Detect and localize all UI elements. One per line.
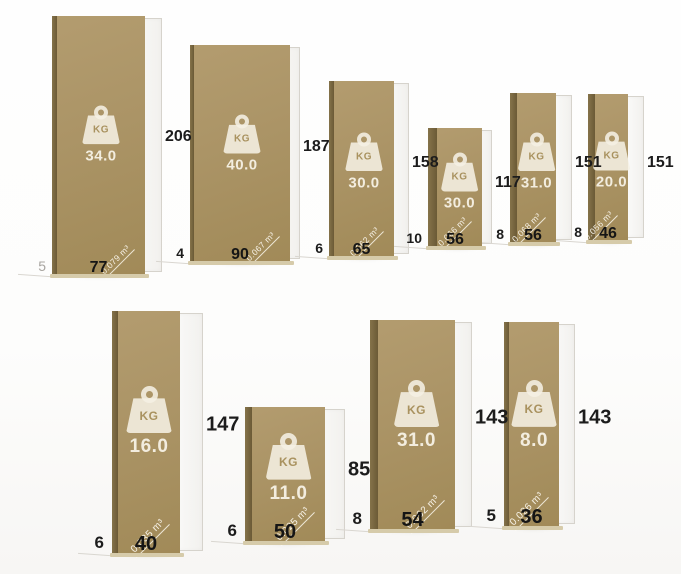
weight-unit-label: KG xyxy=(140,409,159,423)
board-edge xyxy=(112,311,118,553)
board-face: KG 31.0 0.062 m³ 54 xyxy=(370,320,455,529)
weight-knob-icon xyxy=(453,153,467,167)
weight-body-icon: KG xyxy=(266,445,312,480)
weight-knob-icon xyxy=(357,132,371,146)
thickness-label: 5 xyxy=(474,506,496,526)
board-edge xyxy=(329,81,334,256)
weight-unit-label: KG xyxy=(452,172,468,183)
weight-value: 31.0 xyxy=(397,430,436,452)
weight-icon: KG 34.0 xyxy=(82,105,120,164)
thickness-label: 8 xyxy=(482,226,504,242)
board-foot xyxy=(243,541,329,545)
weight-value: 11.0 xyxy=(270,483,308,505)
thickness-label: 6 xyxy=(82,533,104,553)
height-label: 187 xyxy=(303,138,330,156)
weight-value: 20.0 xyxy=(596,174,627,191)
board-edge xyxy=(510,93,517,242)
weight-icon: KG 16.0 xyxy=(126,386,172,458)
weight-knob-icon xyxy=(605,132,619,146)
thickness-label: 6 xyxy=(301,240,323,256)
weight-body-icon: KG xyxy=(345,142,383,171)
weight-value: 16.0 xyxy=(130,436,169,458)
board-8: KG 11.0 0.025 m³ 50 85 6 xyxy=(245,407,325,541)
weight-icon: KG 11.0 xyxy=(266,433,312,505)
weight-value: 8.0 xyxy=(520,430,548,452)
weight-knob-icon xyxy=(94,105,108,119)
board-foot xyxy=(327,256,398,260)
weight-icon: KG 40.0 xyxy=(223,115,261,174)
height-label: 151 xyxy=(647,154,674,172)
weight-unit-label: KG xyxy=(407,403,426,417)
weight-icon: KG 31.0 xyxy=(394,380,440,452)
height-label: 117 xyxy=(495,174,521,192)
board-foot xyxy=(188,261,294,265)
weight-value: 30.0 xyxy=(348,174,379,191)
board-foot xyxy=(508,242,560,246)
board-foot xyxy=(110,553,184,557)
weight-body-icon: KG xyxy=(518,142,556,171)
weight-knob-icon xyxy=(141,386,158,403)
board-foot xyxy=(502,526,563,530)
board-face: KG 31.0 0.068 m³ 56 xyxy=(510,93,556,242)
thickness-label: 8 xyxy=(340,509,362,529)
weight-value: 31.0 xyxy=(521,174,552,191)
board-9: KG 31.0 0.062 m³ 54 143 8 xyxy=(370,320,455,529)
thickness-label: 5 xyxy=(24,258,46,274)
board-3: KG 30.0 0.062 m³ 65 158 6 xyxy=(329,81,394,256)
weight-body-icon: KG xyxy=(82,115,120,144)
board-edge xyxy=(52,16,57,274)
weight-unit-label: KG xyxy=(529,151,545,162)
weight-body-icon: KG xyxy=(126,398,172,433)
weight-knob-icon xyxy=(235,115,249,129)
thickness-label: 8 xyxy=(560,224,582,240)
weight-unit-label: KG xyxy=(279,455,298,469)
weight-knob-icon xyxy=(530,132,544,146)
board-5: KG 31.0 0.068 m³ 56 151 8 xyxy=(510,93,556,242)
thickness-label: 6 xyxy=(215,521,237,541)
board-10: KG 8.0 0.026 m³ 36 143 5 xyxy=(504,322,559,526)
weight-value: 34.0 xyxy=(85,147,116,164)
weight-icon: KG 30.0 xyxy=(441,153,479,212)
board-2: KG 40.0 0.067 m³ 90 187 4 xyxy=(190,45,290,261)
board-foot xyxy=(368,529,459,533)
height-label: 143 xyxy=(475,407,508,430)
board-face: KG 30.0 0.066 m³ 56 xyxy=(428,128,482,246)
weight-icon: KG 31.0 xyxy=(518,132,556,191)
board-foot xyxy=(50,274,149,278)
weight-unit-label: KG xyxy=(604,151,620,162)
weight-value: 30.0 xyxy=(444,195,475,212)
weight-unit-label: KG xyxy=(93,124,109,135)
weight-knob-icon xyxy=(280,433,297,450)
height-label: 143 xyxy=(578,406,611,429)
thickness-label: 10 xyxy=(400,230,422,246)
board-face: KG 30.0 0.062 m³ 65 xyxy=(329,81,394,256)
weight-body-icon: KG xyxy=(223,125,261,154)
board-edge xyxy=(370,320,378,529)
weight-body-icon: KG xyxy=(511,392,557,427)
board-face: KG 11.0 0.025 m³ 50 xyxy=(245,407,325,541)
board-face: KG 34.0 0.079 m³ 77 xyxy=(52,16,145,274)
weight-body-icon: KG xyxy=(441,163,479,192)
height-label: 147 xyxy=(206,413,239,436)
board-7: KG 16.0 0.035 m³ 40 147 6 xyxy=(112,311,180,553)
height-label: 206 xyxy=(165,128,192,146)
height-label: 158 xyxy=(412,154,439,172)
board-4: KG 30.0 0.066 m³ 56 117 10 xyxy=(428,128,482,246)
weight-unit-label: KG xyxy=(356,151,372,162)
board-edge xyxy=(428,128,437,246)
board-size-infographic: KG 34.0 0.079 m³ 77 206 5 KG 40.0 0.067 … xyxy=(0,0,681,574)
board-1: KG 34.0 0.079 m³ 77 206 5 xyxy=(52,16,145,274)
board-face: KG 40.0 0.067 m³ 90 xyxy=(190,45,290,261)
thickness-label: 4 xyxy=(162,245,184,261)
weight-knob-icon xyxy=(408,380,425,397)
weight-unit-label: KG xyxy=(525,402,544,416)
weight-body-icon: KG xyxy=(394,392,440,427)
weight-value: 40.0 xyxy=(226,157,257,174)
weight-icon: KG 8.0 xyxy=(511,380,557,452)
board-face: KG 16.0 0.035 m³ 40 xyxy=(112,311,180,553)
weight-knob-icon xyxy=(526,380,543,397)
board-face: KG 8.0 0.026 m³ 36 xyxy=(504,322,559,526)
board-edge xyxy=(190,45,194,261)
board-foot xyxy=(586,240,632,244)
weight-unit-label: KG xyxy=(234,134,250,145)
height-label: 85 xyxy=(348,458,370,481)
weight-icon: KG 30.0 xyxy=(345,132,383,191)
board-foot xyxy=(426,246,486,250)
height-label: 151 xyxy=(575,154,602,172)
